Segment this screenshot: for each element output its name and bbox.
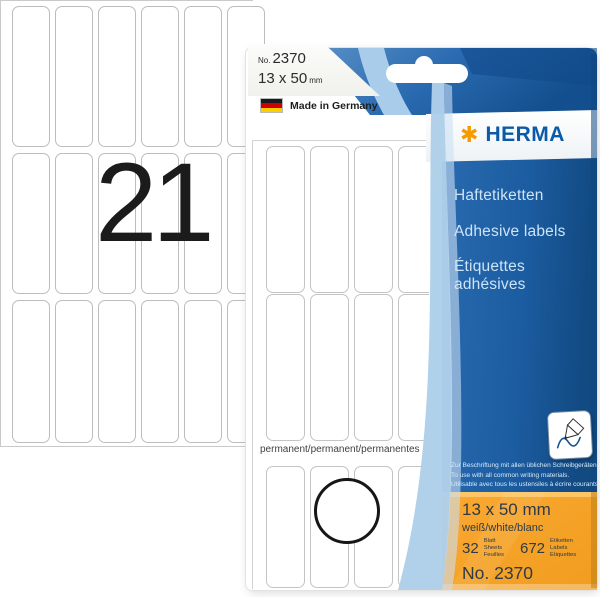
sheet-count-number: 21 — [95, 147, 210, 259]
blank-label — [266, 146, 305, 293]
spec-counts: 32 Blatt Sheets Feuilles 672 Etiketten L… — [462, 538, 592, 558]
blank-label — [98, 6, 136, 147]
blank-label — [141, 6, 179, 147]
brand-logo: ✱ HERMA — [428, 112, 597, 158]
corner-tag: No. 2370 13 x 50 mm — [248, 44, 380, 96]
tag-unit: mm — [309, 72, 322, 90]
blank-label — [398, 294, 429, 441]
spec-panel: 13 x 50 mm weiß/white/blanc 32 Blatt She… — [442, 492, 597, 590]
sheets-unit-fr: Feuilles — [484, 552, 504, 559]
blank-label — [266, 294, 305, 441]
blank-label — [354, 294, 393, 441]
product-name-fr-line1: Étiquettes — [454, 258, 566, 276]
labels-unit-en: Labels — [550, 545, 576, 552]
blank-label — [98, 300, 136, 443]
labels-unit-fr: Etiquettes — [550, 552, 576, 559]
permanent-text: permanent/permanent/permanentes — [260, 444, 420, 455]
blank-label — [398, 466, 429, 588]
blank-label — [141, 300, 179, 443]
spec-color-names: weiß/white/blanc — [462, 522, 543, 534]
product-name-de: Haftetiketten — [454, 186, 566, 206]
blank-label — [184, 6, 222, 147]
blank-label — [12, 153, 50, 294]
blank-label — [398, 146, 429, 293]
usage-en: To use with all common writing materials… — [451, 471, 597, 481]
usage-fr: Utilisable avec tous les ustensiles à éc… — [451, 480, 597, 490]
blank-label — [55, 153, 93, 294]
tag-article-number: 2370 — [272, 50, 305, 68]
usage-de: Zur Beschriftung mit allen üblichen Schr… — [451, 461, 597, 471]
tag-no-prefix: No. — [258, 52, 270, 70]
usage-note: Zur Beschriftung mit allen üblichen Schr… — [451, 461, 597, 490]
package-printed-sheet: permanent/permanent/permanentes — [252, 140, 429, 589]
star-icon: ✱ — [460, 124, 478, 146]
blank-label — [12, 6, 50, 147]
spec-article-number: No. 2370 — [462, 563, 533, 584]
spec-size: 13 x 50 mm — [462, 500, 551, 520]
sheets-unit-de: Blatt — [484, 538, 504, 545]
blank-label — [354, 146, 393, 293]
sheets-units: Blatt Sheets Feuilles — [484, 538, 504, 558]
product-name-fr-line2: adhésives — [454, 276, 566, 294]
pen-icon — [547, 410, 593, 460]
product-name-en: Adhesive labels — [454, 222, 566, 242]
blank-label — [12, 300, 50, 443]
labels-unit-de: Etiketten — [550, 538, 576, 545]
product-names: Haftetiketten Adhesive labels Étiquettes… — [454, 186, 566, 310]
product-image: 21 permanent/permanent/permanentes — [0, 0, 600, 597]
origin-row: Made in Germany — [260, 98, 378, 113]
labels-count: 672 — [520, 540, 545, 557]
blank-label — [266, 466, 305, 588]
brand-name: HERMA — [485, 123, 565, 147]
blank-label — [310, 294, 349, 441]
hang-slot-icon — [386, 56, 468, 83]
german-flag-icon — [260, 98, 283, 113]
blank-label — [184, 300, 222, 443]
label-sheet: 21 — [0, 0, 253, 447]
blank-label — [310, 146, 349, 293]
tag-size: 13 x 50 — [258, 70, 307, 88]
blank-label — [55, 6, 93, 147]
labels-units: Etiketten Labels Etiquettes — [550, 538, 576, 558]
origin-label: Made in Germany — [290, 100, 378, 112]
sheets-unit-en: Sheets — [484, 545, 504, 552]
package: permanent/permanent/permanentes — [246, 48, 597, 590]
blank-label — [55, 300, 93, 443]
sheets-count: 32 — [462, 540, 479, 557]
size-circle — [314, 478, 380, 544]
